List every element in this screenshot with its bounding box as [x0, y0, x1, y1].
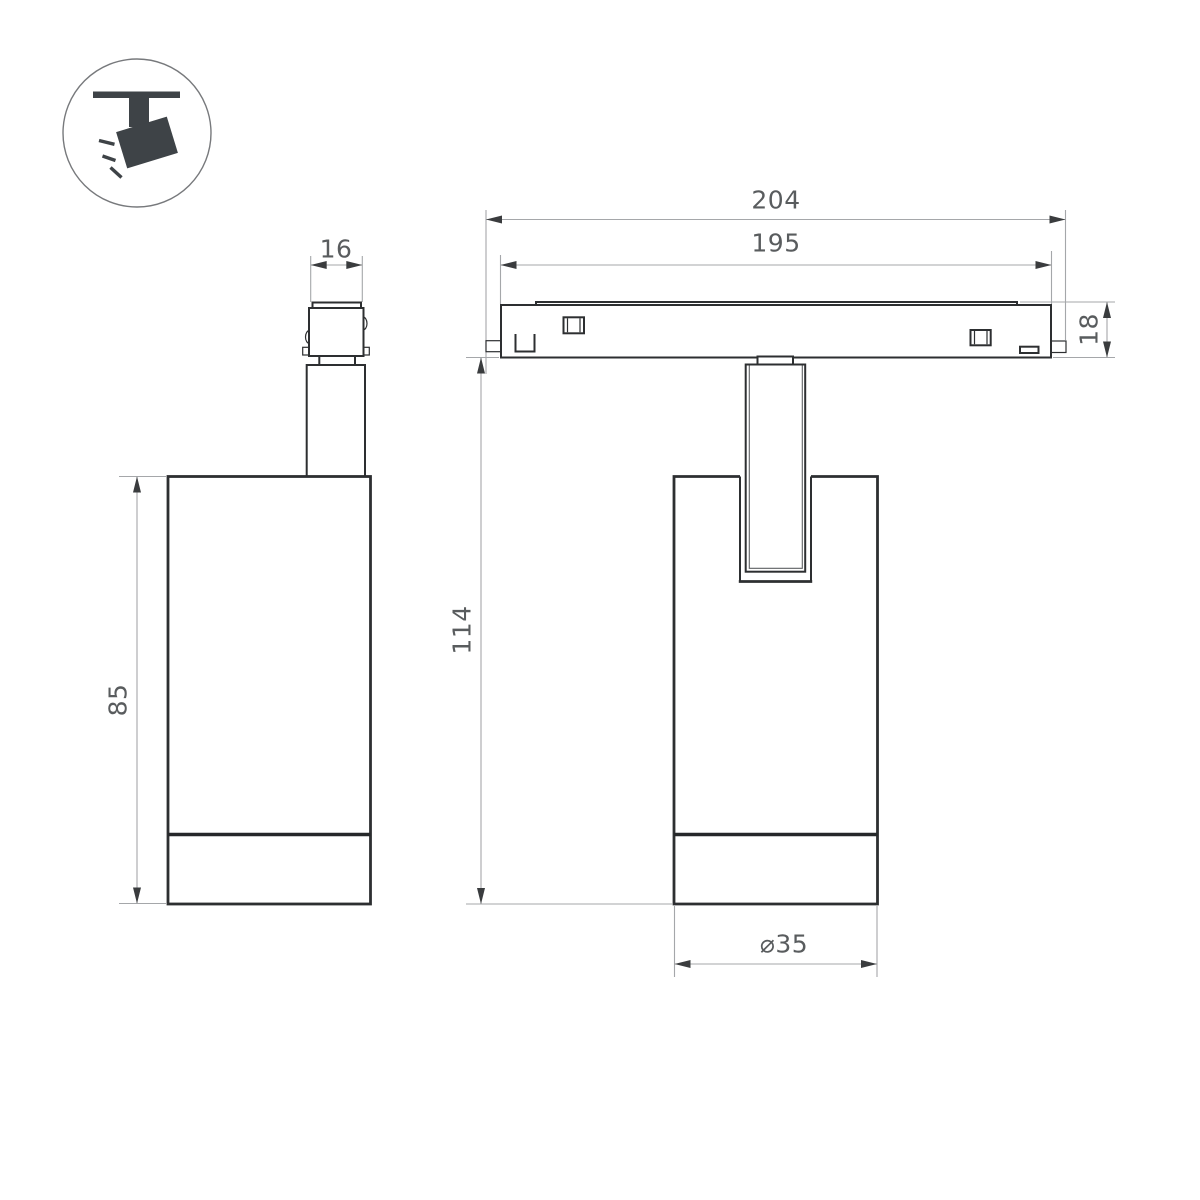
dimension-label-connector-width: 16: [320, 235, 353, 264]
dimension-overall-height: 114: [448, 358, 673, 905]
track-top-strip: [536, 302, 1017, 305]
dimension-label-lamp-diameter: ⌀35: [760, 930, 808, 959]
dimension-label-track-length-outer: 204: [751, 186, 800, 215]
track-contact-plate: [1020, 347, 1039, 353]
front-view: [486, 302, 1066, 904]
dimension-label-track-length-inner: 195: [751, 229, 800, 258]
track-spotlight-dimension-drawing: 16 85 204 195 18 114 ⌀35: [0, 0, 1200, 1200]
side-connector-block: [309, 308, 364, 356]
dimension-connector-width: 16: [311, 235, 363, 303]
icon-lamp-stem: [129, 97, 149, 127]
side-lamp-body: [168, 477, 371, 905]
track-left-tab: [486, 341, 501, 352]
dimension-label-overall-height: 114: [448, 605, 477, 654]
front-stem-cap: [758, 357, 794, 365]
ceiling-spotlight-icon: [63, 59, 211, 207]
dimension-label-lamp-body-height: 85: [104, 684, 133, 717]
side-stem: [307, 365, 365, 477]
side-view: [168, 303, 371, 905]
track-right-tab: [1051, 341, 1066, 353]
dimension-label-track-height: 18: [1075, 313, 1104, 346]
dimension-track-length-inner: 195: [501, 229, 1052, 305]
side-connector-neck: [319, 356, 355, 365]
dimension-lamp-diameter: ⌀35: [675, 906, 878, 977]
dimension-lamp-body-height: 85: [104, 477, 167, 904]
front-stem: [746, 365, 806, 572]
